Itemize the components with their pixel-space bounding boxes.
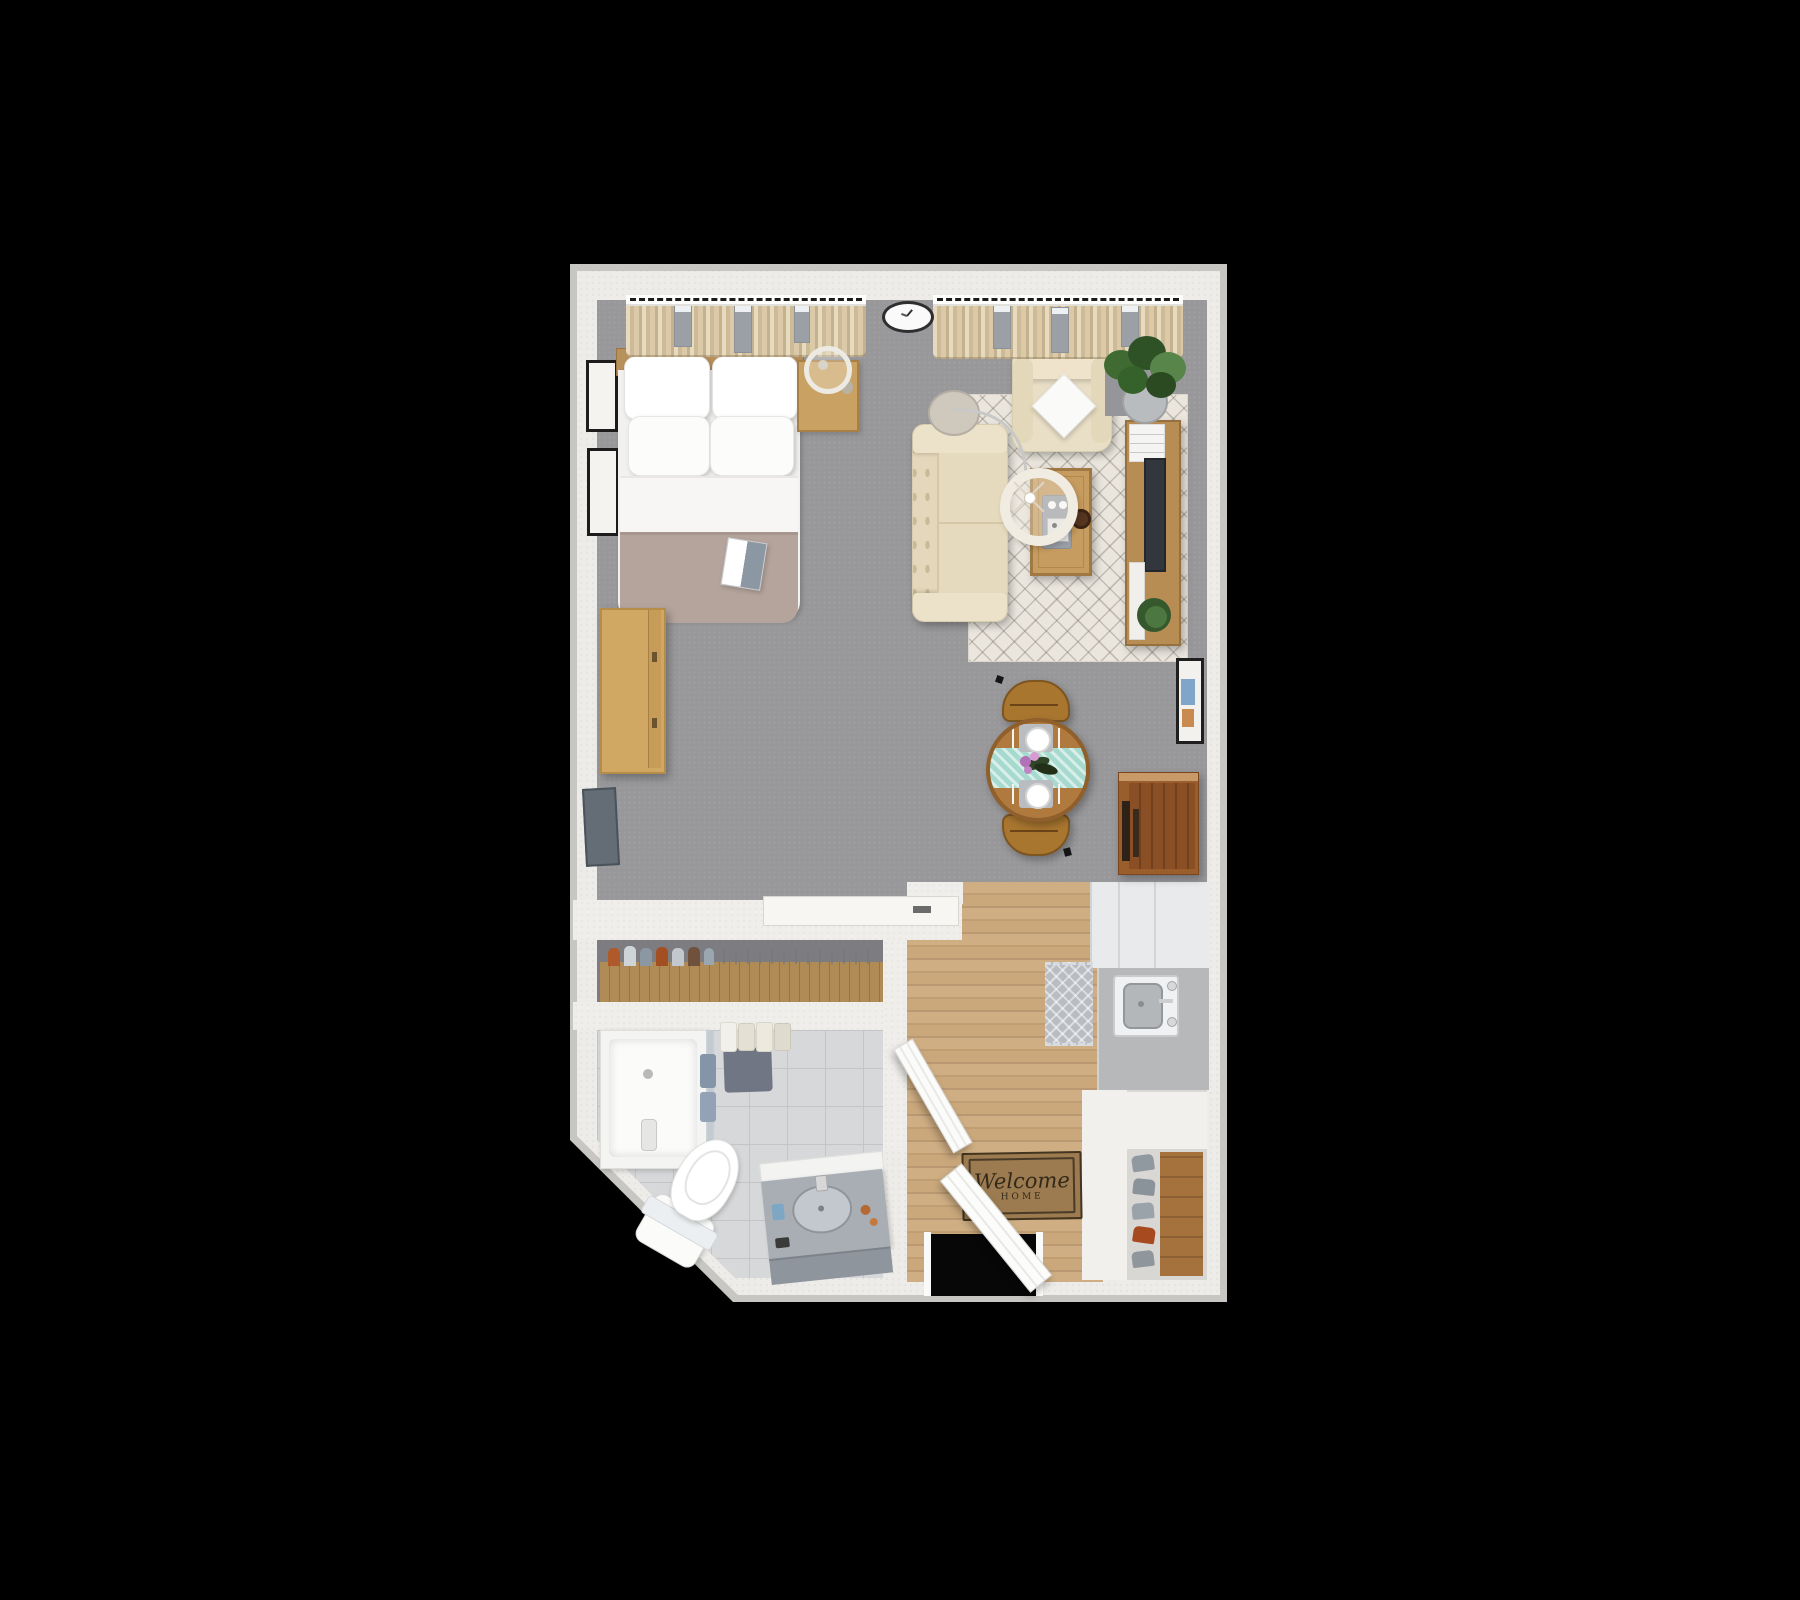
dining-table bbox=[986, 718, 1090, 822]
cabinet-slot bbox=[1133, 809, 1139, 857]
shirt bbox=[624, 946, 636, 966]
entry-partition-wall bbox=[1082, 1090, 1127, 1280]
arc-lamp-shade bbox=[1000, 468, 1078, 546]
plant-leaves bbox=[1146, 372, 1176, 398]
shirt bbox=[672, 948, 684, 966]
fork-icon bbox=[1012, 784, 1014, 804]
cushion-seam bbox=[939, 522, 1007, 524]
hanging-towel-blue bbox=[700, 1054, 716, 1088]
wall-art-frame bbox=[586, 360, 618, 432]
soap-bottle bbox=[869, 1218, 878, 1227]
shirt bbox=[704, 948, 714, 965]
hanging-towel-blue bbox=[700, 1092, 716, 1122]
vanity-faucet-icon bbox=[815, 1175, 829, 1192]
plate bbox=[1025, 727, 1051, 753]
vanity-counter bbox=[761, 1169, 890, 1259]
shirt bbox=[688, 947, 700, 966]
lamp-bulb bbox=[818, 360, 828, 370]
art-color-block bbox=[1181, 679, 1195, 705]
faucet-knob-icon bbox=[1167, 1017, 1177, 1027]
chair-seam bbox=[1010, 704, 1058, 706]
closet-wardrobe bbox=[600, 962, 883, 1002]
wall-mounted-tv bbox=[582, 787, 620, 867]
dresser-handle bbox=[652, 652, 657, 662]
sofa-armrest bbox=[913, 593, 1007, 621]
shoe-pair-orange bbox=[1132, 1226, 1156, 1245]
empty-hangers bbox=[723, 950, 873, 964]
shirt bbox=[656, 947, 668, 966]
refrigerator bbox=[1090, 882, 1209, 968]
dresser-side bbox=[648, 610, 661, 768]
vanity-drain bbox=[818, 1205, 825, 1212]
armchair-arm bbox=[1013, 357, 1033, 443]
entry-shoe-nook bbox=[1127, 1147, 1207, 1280]
toilet-seat-line bbox=[676, 1142, 740, 1212]
shoe-pair bbox=[1131, 1250, 1155, 1269]
towel bbox=[720, 1022, 737, 1052]
bed bbox=[616, 348, 802, 620]
towel bbox=[756, 1022, 773, 1052]
pillow bbox=[710, 416, 794, 476]
art-color-block bbox=[1182, 709, 1194, 727]
dresser-handle bbox=[652, 718, 657, 728]
window-glass bbox=[674, 305, 692, 347]
shade-hub bbox=[1024, 492, 1036, 504]
towel bbox=[774, 1023, 791, 1051]
shower-wand bbox=[641, 1119, 657, 1151]
window-glass bbox=[993, 305, 1011, 349]
chair-seam bbox=[1010, 830, 1058, 832]
kitchen-mat bbox=[1045, 962, 1093, 1046]
pillow bbox=[628, 416, 710, 476]
clock-hand bbox=[906, 309, 913, 316]
small-plant bbox=[1145, 606, 1167, 628]
towel-rack bbox=[720, 1022, 796, 1052]
pillow bbox=[712, 356, 798, 420]
cabinet-slot bbox=[1122, 801, 1130, 861]
soap-bottle bbox=[860, 1204, 871, 1215]
cabinet-top-edge bbox=[1119, 773, 1198, 781]
shirt bbox=[608, 948, 620, 966]
knife-icon bbox=[1058, 728, 1060, 748]
sofa-seat-cushions bbox=[937, 453, 1007, 593]
faucet-knob-icon bbox=[1167, 981, 1177, 991]
ledge-slot bbox=[913, 906, 931, 913]
shoe-pair bbox=[1131, 1154, 1155, 1173]
faucet-spout-icon bbox=[1159, 999, 1173, 1003]
dresser bbox=[600, 608, 666, 774]
plate bbox=[1025, 783, 1051, 809]
wall-clock bbox=[882, 301, 934, 333]
wall-ledge-desk bbox=[763, 896, 959, 926]
bar-cabinet bbox=[1118, 772, 1199, 875]
wall-art-frame bbox=[587, 448, 619, 536]
window-glass bbox=[1051, 307, 1069, 353]
throw-pillow bbox=[1031, 373, 1096, 438]
flower bbox=[1024, 766, 1032, 774]
sink-drain bbox=[1138, 1001, 1144, 1007]
towel bbox=[738, 1023, 755, 1051]
bath-mat bbox=[723, 1047, 773, 1093]
toothbrush-cup bbox=[771, 1203, 785, 1220]
window-glass bbox=[734, 305, 752, 353]
curtain-rail bbox=[933, 295, 1183, 306]
floor-lamp-base bbox=[928, 390, 980, 436]
table-lamp bbox=[804, 346, 852, 394]
plant-leaves bbox=[1118, 366, 1148, 394]
art-frame-right-wall bbox=[1176, 658, 1204, 744]
shoe-pair bbox=[1131, 1202, 1154, 1220]
floor-plan: Welcome HOME bbox=[560, 262, 1230, 1305]
sofa-back bbox=[913, 425, 939, 621]
bathroom-vanity bbox=[759, 1151, 893, 1283]
magazines bbox=[1129, 424, 1165, 462]
flower bbox=[1030, 752, 1039, 761]
pillow bbox=[624, 356, 710, 420]
screenshot-canvas: Welcome HOME bbox=[0, 0, 1800, 1600]
shirt bbox=[640, 948, 652, 966]
book-on-bed bbox=[720, 537, 767, 591]
armchair bbox=[1012, 346, 1112, 452]
black-accessory bbox=[775, 1237, 790, 1248]
potted-plant bbox=[1098, 332, 1194, 424]
kitchen-sink bbox=[1113, 975, 1179, 1037]
shower-drain bbox=[643, 1069, 653, 1079]
bed-sheet bbox=[620, 476, 798, 538]
curtain-rail bbox=[626, 295, 866, 306]
tv-console bbox=[1125, 420, 1181, 646]
shoe-pair bbox=[1132, 1178, 1156, 1196]
fork-icon bbox=[1012, 728, 1014, 748]
television bbox=[1144, 458, 1166, 572]
window-glass bbox=[794, 305, 810, 343]
shoe-shelf bbox=[1160, 1152, 1203, 1276]
hanging-clothes bbox=[608, 946, 878, 968]
sofa bbox=[912, 424, 1008, 622]
door-jamb bbox=[924, 1232, 931, 1296]
knife-icon bbox=[1058, 784, 1060, 804]
